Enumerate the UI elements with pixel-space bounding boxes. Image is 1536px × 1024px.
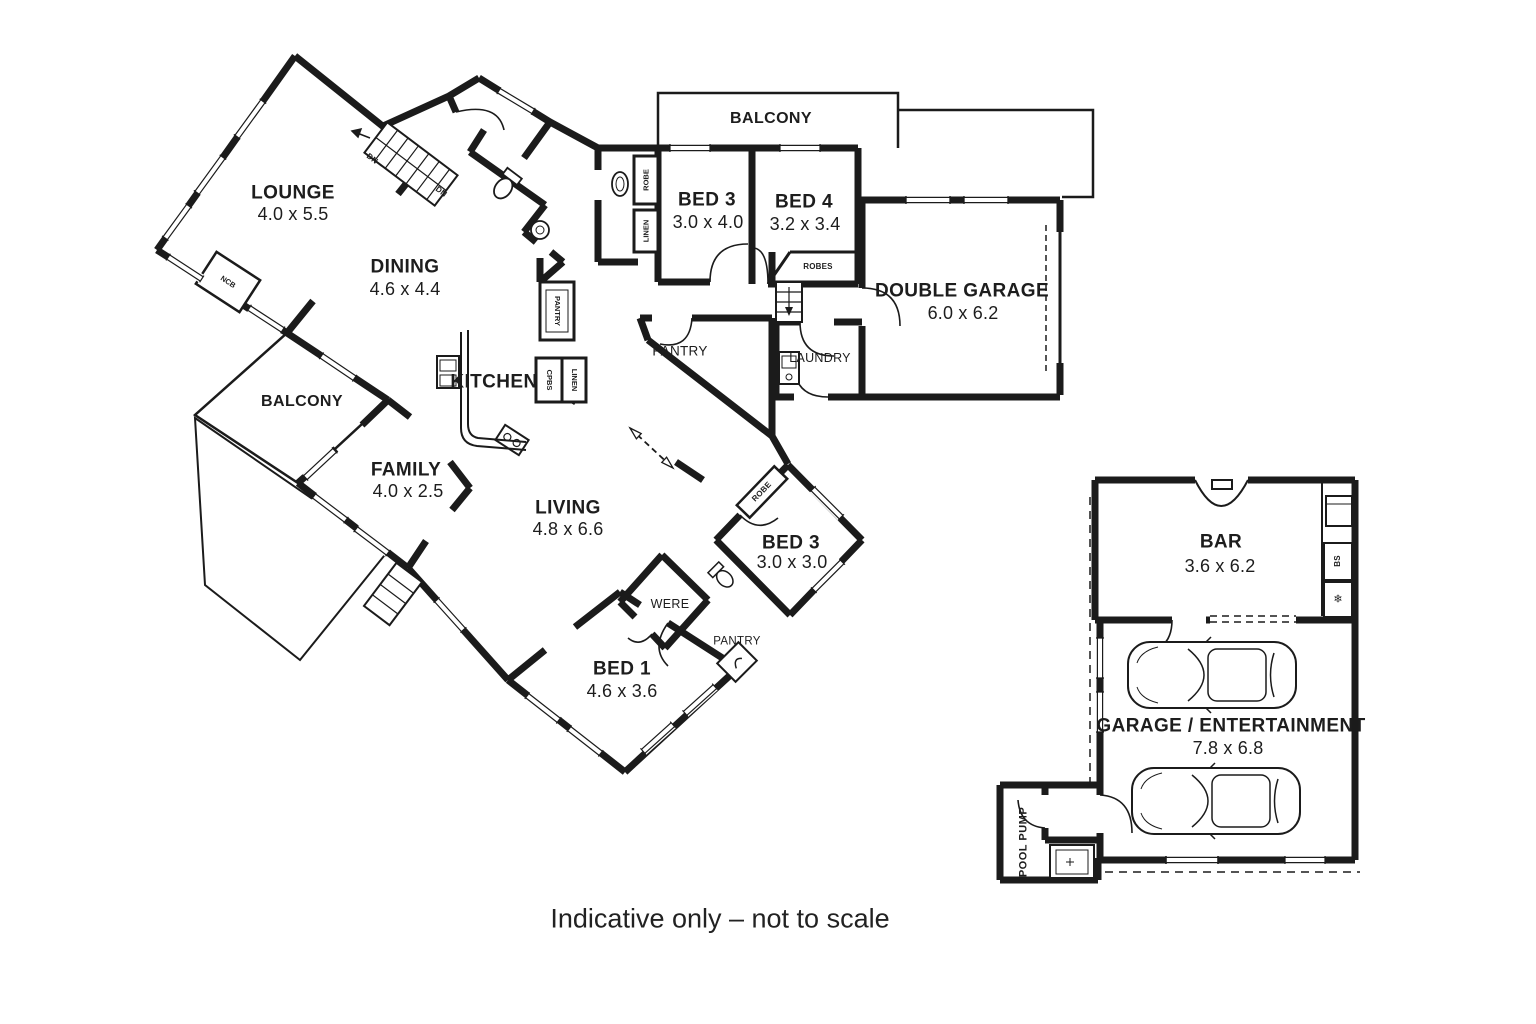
were-label: WERE	[651, 598, 690, 611]
floor-plan-page: LOUNGE 4.0 x 5.5 DINING 4.6 x 4.4 BALCON…	[0, 0, 1536, 1024]
lounge-label: LOUNGE	[251, 184, 335, 203]
toil1et-icon-2	[708, 562, 737, 591]
bed3-lower-label: BED 3	[762, 534, 820, 553]
double-garage-dims: 6.0 x 6.2	[928, 304, 999, 322]
linen-kitchen-label: LINEN	[570, 369, 578, 392]
bed4-label: BED 4	[775, 193, 833, 212]
caption: Indicative only – not to scale	[550, 906, 889, 933]
opening-arrow	[630, 428, 673, 468]
bed3-top-dims: 3.0 x 4.0	[673, 213, 744, 231]
bed4-dims: 3.2 x 3.4	[770, 215, 841, 233]
car-icon	[1132, 763, 1300, 839]
bar-dims: 3.6 x 6.2	[1185, 557, 1256, 575]
balcony-left-label: BALCONY	[261, 394, 343, 410]
family-label: FAMILY	[371, 461, 441, 480]
cupboard-boxes	[536, 156, 658, 402]
lounge-dims: 4.0 x 5.5	[258, 205, 329, 223]
balcony-top-label: BALCONY	[730, 111, 812, 127]
car-icon	[1128, 637, 1296, 713]
bar-label: BAR	[1200, 533, 1242, 552]
walls	[157, 56, 1355, 880]
stairs-arrow	[352, 129, 370, 138]
freezer-icon: ❄	[1333, 595, 1342, 606]
laundry-label: LAUNDRY	[789, 352, 851, 365]
pool-pump-label: POOL PUMP	[1019, 807, 1030, 877]
floor-plan-drawing	[0, 0, 1536, 1024]
cupboards-label: CPBS	[545, 370, 553, 391]
garage-ent-label: GARAGE / ENTERTAINMENT	[1096, 717, 1365, 736]
windows	[162, 87, 1325, 865]
family-dims: 4.0 x 2.5	[373, 482, 444, 500]
bed1-dims: 4.6 x 3.6	[587, 682, 658, 700]
bed3-top-label: BED 3	[678, 191, 736, 210]
double-garage-label: DOUBLE GARAGE	[875, 282, 1049, 301]
dining-dims: 4.6 x 4.4	[370, 280, 441, 298]
stairs-laundry	[776, 282, 802, 322]
pantry-label: PANTRY	[652, 344, 707, 358]
robe-hall-label: ROBE	[642, 169, 650, 191]
garage-ent-dims: 7.8 x 6.8	[1193, 739, 1264, 757]
bed3-lower-dims: 3.0 x 3.0	[757, 553, 828, 571]
living-label: LIVING	[535, 499, 601, 518]
hot-water-box	[717, 642, 757, 682]
living-dims: 4.8 x 6.6	[533, 520, 604, 538]
robes-bed4-label: ROBES	[803, 263, 832, 271]
bed1-label: BED 1	[593, 660, 651, 679]
pantry-bed1-label: PANTRY	[713, 636, 760, 648]
linen-hall-label: LINEN	[642, 220, 650, 243]
pantry-cupboard-label: PANTRY	[553, 296, 561, 326]
bar-semicircle	[1195, 480, 1248, 506]
dining-label: DINING	[371, 258, 440, 277]
pool-pump-shower-box	[1050, 845, 1094, 878]
bar-shelf-label: BS	[1334, 555, 1342, 567]
kitchen-label: KITCHEN	[450, 373, 537, 392]
